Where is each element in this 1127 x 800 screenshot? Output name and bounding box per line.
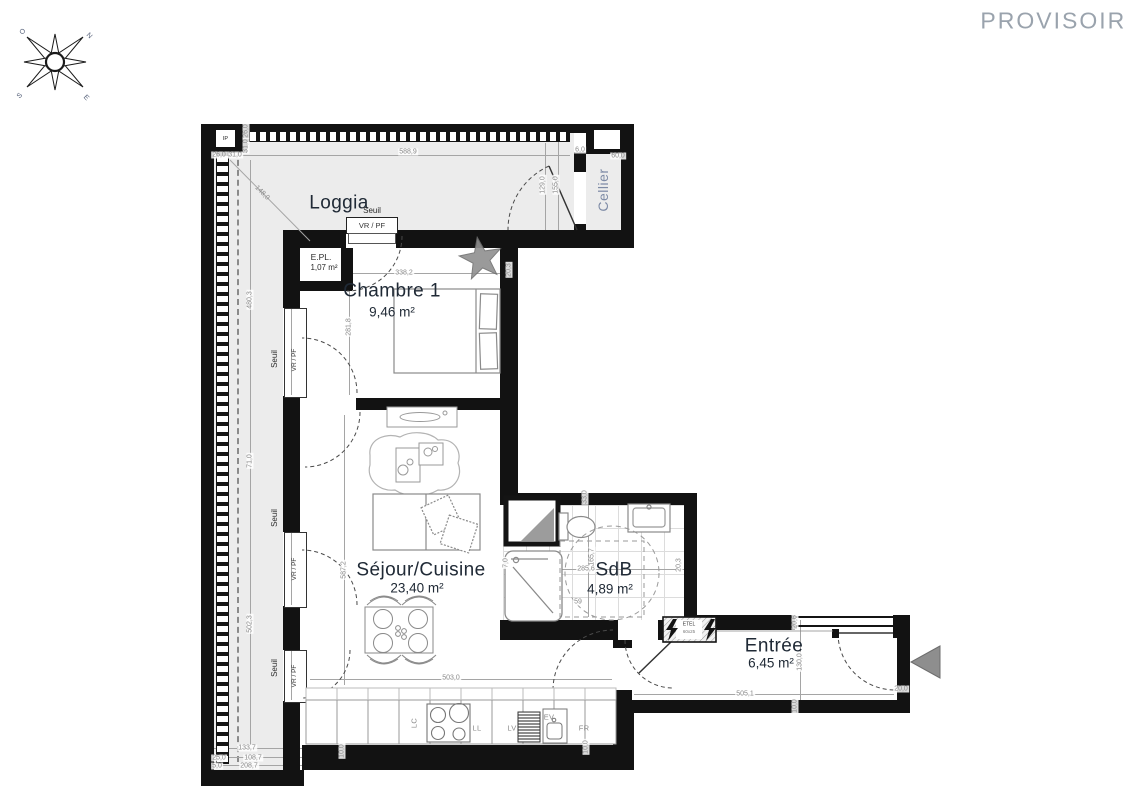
dim-label: 31,0 — [243, 138, 250, 154]
dim-label: 71,0 — [247, 453, 254, 469]
dim-label: 338,2 — [394, 270, 414, 277]
dim-label: 505,1 — [735, 691, 755, 698]
room-label-sejour: Séjour/Cuisine — [356, 561, 485, 580]
plan-vector-layer — [0, 0, 1127, 800]
door-frame-mark — [893, 629, 900, 638]
etel-label: ETEL — [683, 623, 696, 628]
dim-label: 10,0 — [339, 743, 346, 759]
dim-label: 20,0 — [893, 686, 909, 693]
vrpf-label-3: VR / PF — [292, 665, 299, 688]
seuil-label-top: Seuil — [363, 207, 381, 215]
appliance-label-lv: LV — [507, 724, 516, 732]
dim-label: 130,0 — [797, 652, 804, 672]
appliance-label-lc: LC — [410, 718, 418, 728]
appliance-label-ev: EV — [544, 713, 555, 721]
appliance-label-fr: FR — [579, 724, 590, 732]
side-tables — [396, 443, 443, 482]
floor-plan: PROVISOIRE — [0, 0, 1127, 800]
dim-label: 208,7 — [239, 763, 259, 770]
door-arc-chambre — [305, 412, 360, 467]
dim-label: 20,6 — [792, 614, 799, 630]
dim-label: 480,3 — [247, 290, 254, 310]
vrpf-label-2: VR / PF — [292, 558, 299, 581]
door-arc-window-1 — [302, 338, 357, 393]
door-leaves — [549, 166, 895, 673]
door-arc-sejour-entree — [553, 630, 613, 690]
washbasin — [628, 504, 670, 532]
bed — [394, 289, 500, 373]
dim-label: 31,0 — [227, 152, 243, 159]
dim-label: 10,0 — [583, 739, 590, 755]
tv-console — [387, 407, 457, 427]
dim-label: 6,0 — [574, 147, 586, 154]
dim-label: 25,0 — [211, 755, 227, 762]
door-leaf-sdb — [639, 640, 673, 673]
dim-label: 165,7 — [589, 547, 596, 567]
dim-label: 60,0 — [610, 153, 626, 160]
dim-label: 7,0 — [503, 557, 510, 569]
sink-hatched-block — [518, 712, 540, 742]
dim-label: 155,0 — [553, 175, 560, 195]
dim-label: 26,0 — [243, 123, 250, 139]
dim-label: 20,3 — [506, 262, 513, 278]
seuil-label-1: Seuil — [271, 350, 279, 368]
dining-set — [365, 596, 436, 664]
dim-label: 588,9 — [398, 149, 418, 156]
room-label-epl: E.PL. — [311, 253, 332, 262]
door-arc-front — [838, 633, 895, 690]
dim-label: 59 — [573, 599, 583, 606]
duct-gaine — [506, 498, 558, 544]
door-frame-mark — [832, 629, 839, 638]
room-label-sdb: SdB — [595, 561, 632, 580]
room-area-entree: 6,45 m² — [748, 656, 794, 670]
dim-label: 285,6 — [576, 566, 596, 573]
cooktop — [427, 704, 470, 743]
compass-rose-icon — [24, 34, 86, 90]
dim-label: 129,0 — [540, 175, 547, 195]
appliance-label-ll: LL — [473, 724, 482, 732]
shower — [505, 551, 562, 621]
room-area-sejour: 23,40 m² — [390, 581, 443, 595]
star-decoration — [459, 237, 500, 278]
seuil-label-2: Seuil — [271, 509, 279, 527]
dim-label: 502,3 — [247, 614, 254, 634]
dim-label: 587,2 — [341, 560, 348, 580]
dim-label: 5,0 — [211, 763, 223, 770]
room-area-sdb: 4,89 m² — [587, 582, 633, 596]
dim-label: 26,0 — [211, 152, 227, 159]
room-area-chambre: 9,46 m² — [369, 305, 415, 319]
room-label-loggia: Loggia — [309, 194, 368, 213]
dim-label: 10,0 — [792, 698, 799, 714]
room-label-cellier: Cellier — [596, 168, 610, 211]
dim-label: 133,7 — [237, 745, 257, 752]
door-arc-window-2 — [302, 550, 357, 605]
dim-label: 503,0 — [441, 675, 461, 682]
sofa — [373, 494, 480, 553]
room-area-epl: 1,07 m² — [310, 264, 337, 272]
room-label-chambre: Chambre 1 — [343, 282, 441, 301]
dim-label: 281,8 — [346, 317, 353, 337]
dim-label: 20,3 — [676, 557, 683, 573]
dim-label: 108,7 — [243, 755, 263, 762]
toilet — [559, 513, 595, 540]
vrpf-label-1: VR / PF — [292, 349, 299, 372]
seuil-label-3: Seuil — [271, 659, 279, 677]
entrance-arrow-icon — [911, 646, 940, 678]
dim-label: 33,0 — [582, 489, 589, 505]
room-label-entree: Entrée — [745, 637, 803, 656]
etel-size-label: 60x25 — [683, 630, 695, 635]
dimension-line-diagonal — [230, 160, 310, 241]
